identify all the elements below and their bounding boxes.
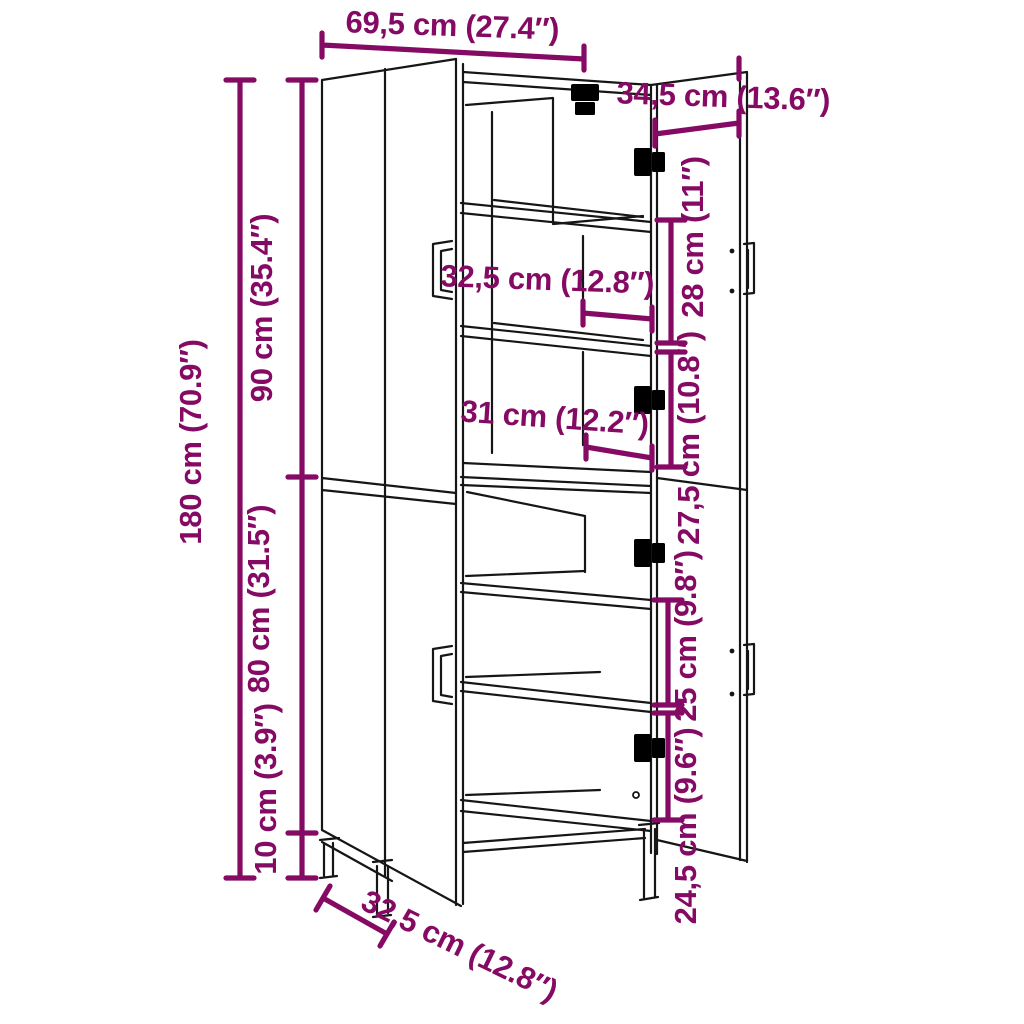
label-lower-height: 80 cm (31.5″) xyxy=(241,505,276,693)
cabinet-dimension-diagram: 69,5 cm (27.4″) 34,5 cm (13.6″) 180 cm (… xyxy=(0,0,1024,1024)
label-upper-height: 90 cm (35.4″) xyxy=(244,214,279,402)
label-overall-depth: 32,5 cm (12.8″) xyxy=(356,883,563,1008)
middle-divider xyxy=(461,463,651,493)
leg-back-left xyxy=(320,838,339,878)
leg-front-right xyxy=(639,823,659,900)
shelf-1 xyxy=(461,200,651,232)
label-leg-height: 10 cm (3.9″) xyxy=(248,703,283,875)
dim-line-section-heights xyxy=(288,80,316,878)
diagram-canvas: 69,5 cm (27.4″) 34,5 cm (13.6″) 180 cm (… xyxy=(0,0,1024,1024)
label-overall-height: 180 cm (70.9″) xyxy=(173,339,208,544)
label-gap-mid: 27,5 cm (10.8″) xyxy=(671,331,706,545)
shelf-2 xyxy=(461,323,651,356)
dim-line-upper-shelf-depth xyxy=(583,301,652,331)
label-lower-shelf-depth: 31 cm (12.2″) xyxy=(460,393,650,441)
cam-lock-hole xyxy=(633,792,639,798)
shelf-4 xyxy=(461,672,651,712)
left-door-lower-handle-icon xyxy=(433,646,452,704)
label-gap-lower: 25 cm (9.8″) xyxy=(668,550,703,722)
label-gap-upper: 28 cm (11″) xyxy=(675,156,710,317)
label-upper-shelf-depth: 32,5 cm (12.8″) xyxy=(440,258,655,300)
bottom-panel xyxy=(461,790,651,831)
shelf-3 xyxy=(461,571,651,609)
carcass-bottom xyxy=(463,829,645,852)
label-overall-width: 69,5 cm (27.4″) xyxy=(345,4,560,46)
label-door-width: 34,5 cm (13.6″) xyxy=(616,75,831,117)
label-gap-bottom: 24,5 cm (9.6″) xyxy=(668,728,703,925)
right-door-lower-handle-icon xyxy=(744,644,754,695)
right-door-upper-handle-icon xyxy=(744,243,754,294)
left-door xyxy=(322,59,461,906)
